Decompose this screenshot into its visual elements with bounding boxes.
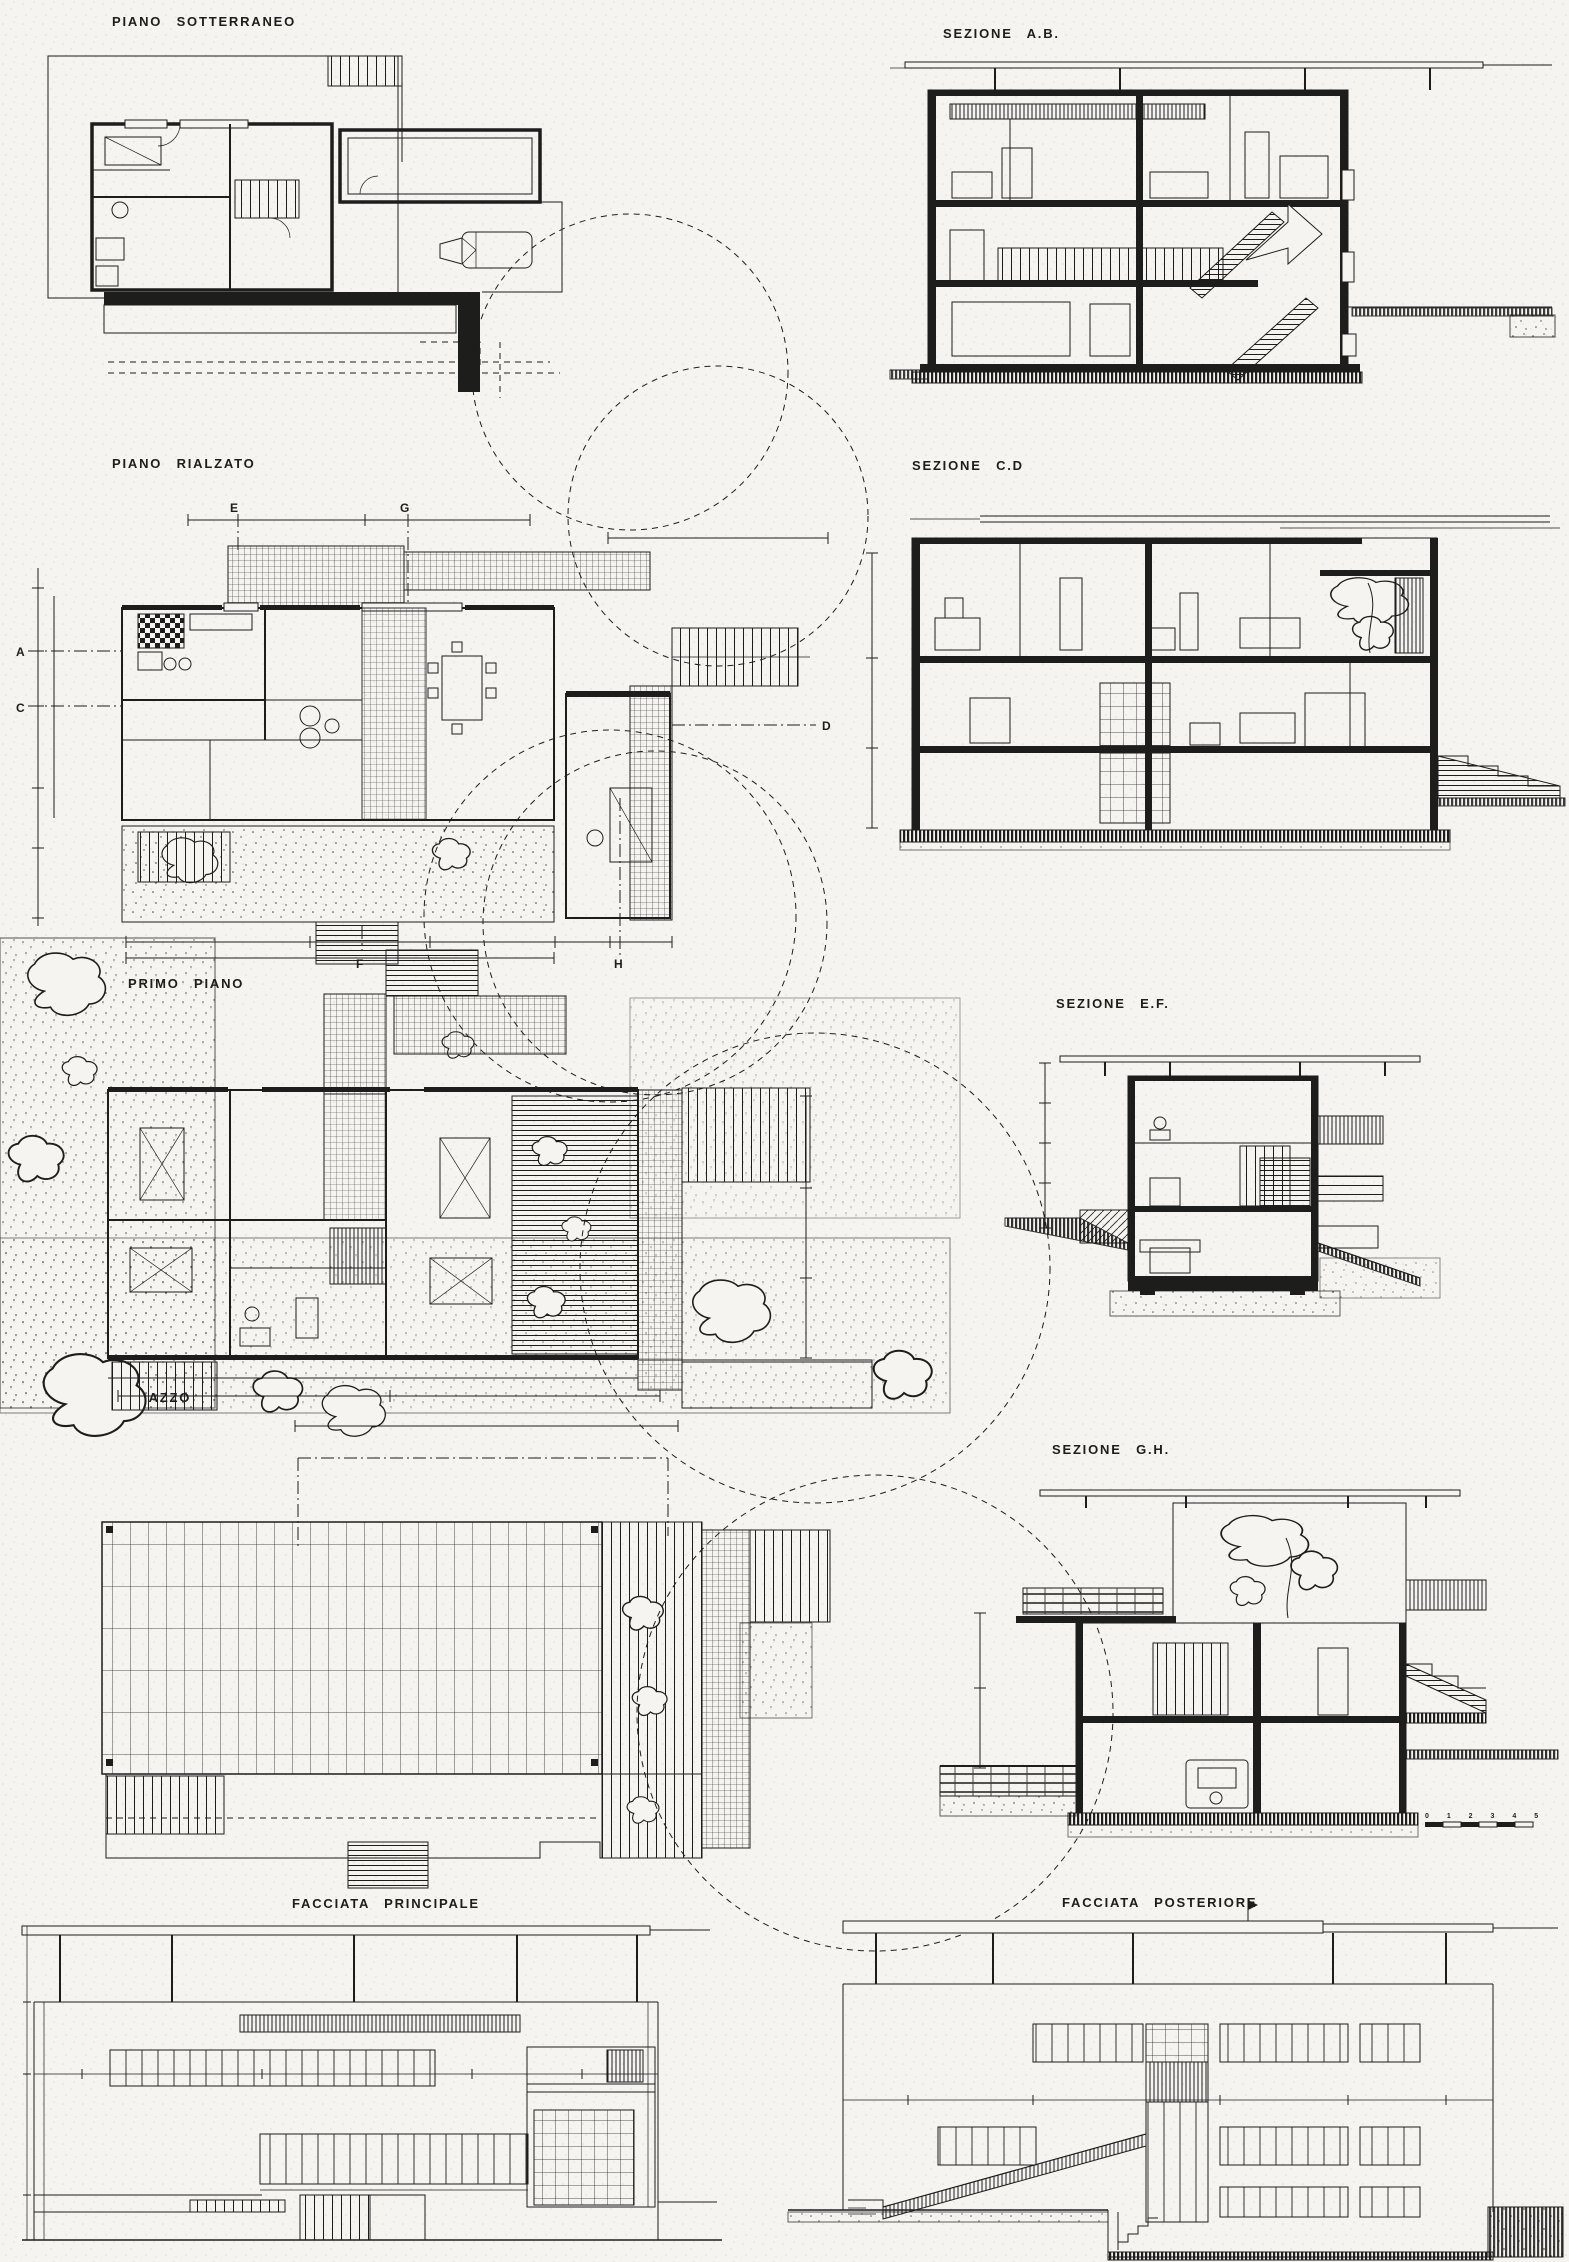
dimension-line-left	[866, 553, 878, 828]
steps	[348, 1842, 428, 1888]
main-floor	[1076, 1623, 1406, 1813]
section-marker-c: C	[16, 701, 25, 715]
patio-garden-hatch	[512, 1096, 638, 1354]
stair-hatch	[330, 1228, 386, 1284]
terrace-stair-hatch	[112, 1362, 217, 1410]
sezione-ab-drawing	[890, 52, 1560, 397]
planting-strip	[602, 1522, 702, 1774]
scale-bar: 0 1 2 3 4 5	[1425, 1813, 1546, 1827]
section-marker-a: A	[16, 645, 25, 659]
exterior-steps-right	[1438, 756, 1560, 798]
exterior-steps-right	[1406, 1664, 1486, 1723]
planter-rail	[190, 2200, 285, 2212]
dimension-lines-top	[188, 514, 828, 544]
garage-room	[340, 130, 540, 202]
basement-furniture	[952, 302, 1130, 356]
dimension-line-left	[1039, 1063, 1051, 1228]
piano-sotterraneo-drawing	[30, 42, 670, 402]
glazed-wall-grid	[1100, 683, 1170, 746]
patio-tree	[1331, 578, 1423, 653]
label-piano-sotterraneo: PIANO SOTTERRANEO	[112, 14, 296, 29]
label-facciata-principale: FACCIATA PRINCIPALE	[292, 1896, 480, 1911]
label-sezione-gh: SEZIONE G.H.	[1052, 1442, 1170, 1457]
stair-hatch	[235, 180, 299, 218]
label-piano-rialzato: PIANO RIALZATO	[112, 456, 256, 471]
upper-patio	[1016, 1503, 1486, 1623]
roof-slab	[1040, 1490, 1460, 1508]
property-dotted-lines	[108, 342, 560, 398]
window-band-upper	[110, 2050, 435, 2086]
roof-slab	[890, 62, 1552, 90]
piano-rialzato-drawing: E G A C	[10, 488, 840, 968]
basement-rooms	[92, 120, 332, 290]
facciata-principale-drawing	[22, 1912, 722, 2247]
facciata-posteriore-drawing	[788, 1912, 1563, 2260]
entry-stair-hatch	[300, 2195, 370, 2240]
dining-table	[428, 642, 496, 734]
tiled-path-hatch	[638, 1090, 682, 1390]
pergola-grid-roof	[102, 1522, 602, 1774]
stair-hatch	[1260, 1158, 1310, 1206]
right-annex	[1318, 1116, 1383, 1248]
dark-panel	[1146, 2062, 1208, 2102]
label-sezione-ef: SEZIONE E.F.	[1056, 996, 1170, 1011]
window-band-middle	[260, 2134, 528, 2184]
interior	[1140, 1117, 1310, 1273]
main-floor	[970, 683, 1365, 748]
stair-window-strip	[1146, 2102, 1208, 2222]
sezione-gh-drawing: 0 1 2 3 4 5	[928, 1468, 1558, 1840]
stair-top-right	[750, 1530, 830, 1622]
wardrobe	[1153, 1643, 1228, 1715]
label-sezione-ab: SEZIONE A.B.	[943, 26, 1060, 41]
roof-slab	[910, 516, 1560, 528]
dimension-lines-left	[32, 568, 54, 926]
roof-slab	[1060, 1056, 1420, 1076]
house-walls	[122, 603, 554, 820]
pergola-hatch	[228, 546, 650, 608]
entrance-walk-hatch	[324, 1094, 386, 1220]
section-marker-g: G	[400, 501, 409, 515]
ground-stipple	[740, 1623, 812, 1718]
sitting-area	[300, 706, 339, 748]
walkway-hatch	[394, 996, 566, 1054]
ground-hatch	[890, 307, 1555, 383]
drawing-sheet: { "document": { "kind": "scanned archite…	[0, 0, 1569, 2262]
terrace-lower-left	[34, 2195, 425, 2240]
entrance-walk-hatch	[362, 608, 426, 820]
garden-stair-hatch	[138, 832, 230, 882]
stair-hatch	[1395, 578, 1423, 653]
roof-slab	[22, 1926, 710, 2002]
pergola-strip-hatch	[324, 994, 386, 1094]
kitchen-fixtures	[138, 614, 252, 670]
sezione-ef-drawing	[990, 1028, 1460, 1363]
dimension-line-left	[23, 1926, 31, 2240]
glazed-grid-window	[534, 2110, 634, 2205]
clerestory-band	[240, 2015, 520, 2032]
label-facciata-posteriore: FACCIATA POSTERIORE	[1062, 1895, 1257, 1910]
section-marker-e: E	[230, 501, 238, 515]
tiled-path-hatch	[630, 686, 672, 920]
section-marker-d: D	[822, 719, 831, 733]
sezione-cd-drawing	[850, 498, 1565, 848]
entry-stair-hatch	[328, 56, 402, 86]
dimension-line-top	[295, 1420, 678, 1432]
car-outline	[440, 232, 532, 268]
label-sezione-cd: SEZIONE C.D	[912, 458, 1024, 473]
lower-window-row	[1220, 2187, 1420, 2217]
upper-window-row	[1033, 2024, 1420, 2102]
svg-text:0 1 2 3 4 5: 0 1 2 3 4 5	[1425, 1813, 1546, 1820]
basement-boiler	[1186, 1760, 1248, 1808]
exterior-stair-hatch	[682, 1088, 810, 1182]
stair-tower	[527, 2047, 655, 2207]
top-stair-hatch	[386, 950, 478, 996]
dimension-line-left	[974, 1613, 986, 1768]
upper-floor-furniture	[935, 578, 1300, 650]
ground-hatch	[900, 798, 1565, 850]
site-outline	[48, 56, 398, 298]
roof-slab	[843, 1921, 1558, 1984]
basement-floor	[1100, 753, 1170, 823]
terrazzo-drawing	[40, 1418, 830, 1868]
primo-piano-drawing	[0, 938, 1000, 1418]
stair-hatch	[106, 1776, 224, 1834]
glazed-wall-grid	[1100, 753, 1170, 823]
